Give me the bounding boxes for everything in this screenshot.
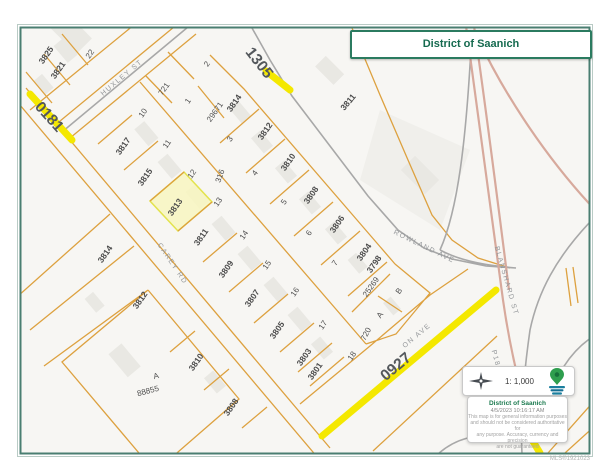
disclaimer-line: are not guaranteed (468, 444, 567, 450)
map-export-page: 3825382138173815381338113809380738053803… (0, 0, 600, 473)
saanich-logo-icon (546, 367, 568, 395)
disclaimer-line: and should not be considered authoritati… (468, 420, 567, 432)
legend-info-card: District of Saanich 4/5/2023 10:16:17 AM… (467, 396, 568, 443)
map-title: District of Saanich (423, 38, 520, 50)
north-arrow-icon (469, 369, 493, 393)
disclaimer-line: any purpose. Accuracy, currency and prec… (468, 432, 567, 444)
legend-org: District of Saanich (468, 400, 567, 407)
scale-label: 1: 1,000 (505, 377, 534, 386)
mls-watermark: MLS®1921023 (536, 456, 590, 462)
legend-scale-card: 1: 1,000 (462, 366, 575, 396)
map-title-box: District of Saanich (350, 30, 592, 59)
